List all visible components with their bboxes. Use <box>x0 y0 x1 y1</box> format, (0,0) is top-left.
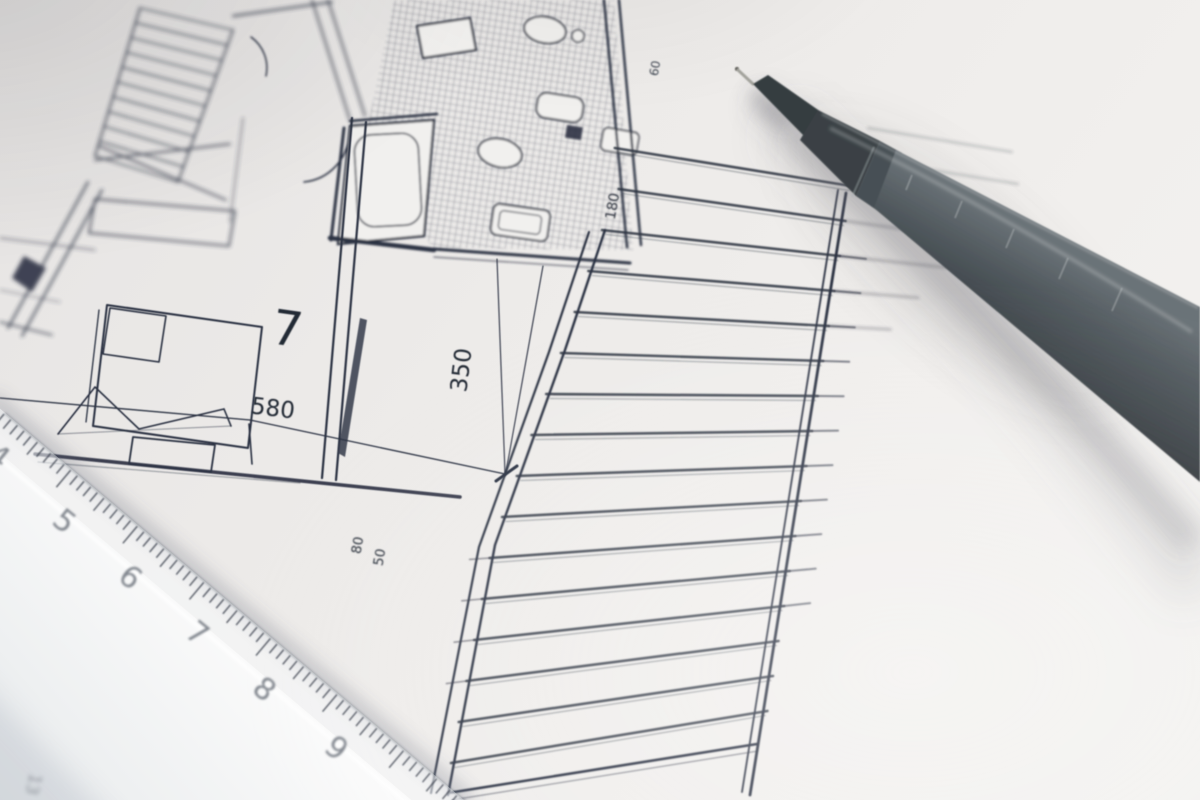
room-number-label: 7 <box>268 299 306 359</box>
washbasin <box>490 203 551 242</box>
pillow <box>103 308 166 362</box>
dim-350-label: 350 <box>446 347 477 394</box>
pen-needle <box>738 70 753 84</box>
dim-580-label: 580 <box>249 393 296 424</box>
dim-80-label: 80 <box>349 535 368 555</box>
blueprint-scene: 7 580 350 80 50 180 60 <box>0 0 1200 800</box>
wall-poche <box>12 256 46 292</box>
deck-right-beam <box>750 193 846 795</box>
sink-tap <box>572 30 584 42</box>
washer-box <box>417 18 476 58</box>
door-leaf <box>338 318 367 457</box>
stair-landing <box>89 199 235 246</box>
left-wall <box>0 182 102 336</box>
door-arc-small <box>251 37 267 76</box>
dim-50-label: 50 <box>371 547 390 567</box>
dim-lines-350 <box>496 259 543 481</box>
dim-60-label: 60 <box>647 60 663 77</box>
blueprint-photo: 7 580 350 80 50 180 60 <box>0 0 1200 800</box>
bed <box>58 305 262 448</box>
bathroom <box>251 0 641 270</box>
staircase <box>0 0 365 336</box>
pen <box>735 67 1200 482</box>
